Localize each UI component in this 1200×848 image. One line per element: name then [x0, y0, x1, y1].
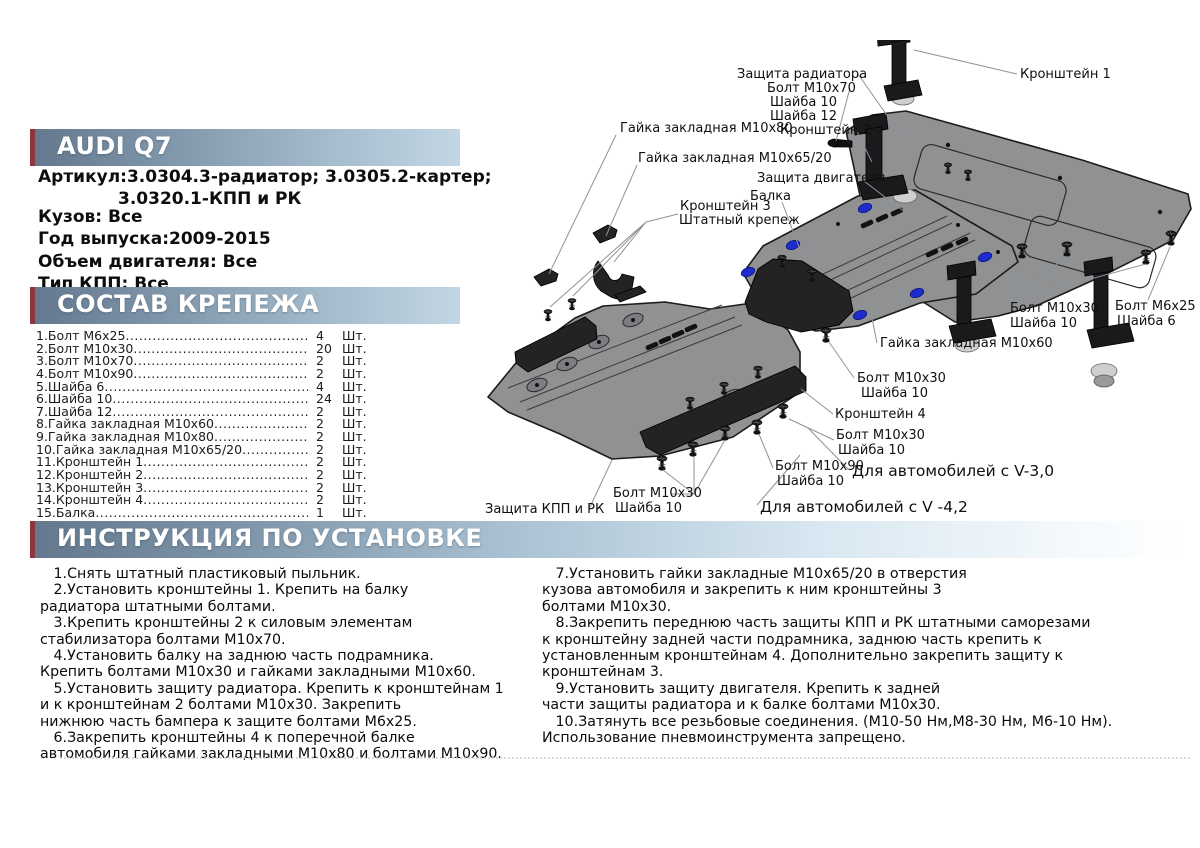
diagram-label: Гайка закладная М10х60	[880, 336, 1053, 351]
accent-stripe	[30, 287, 35, 324]
dot-leader: ........................................…	[95, 507, 308, 520]
diagram-label: Гайка закладная М10х80	[620, 121, 793, 136]
diagram-label: Шайба 10	[777, 474, 844, 489]
diagram-label: Защита радиатора	[737, 67, 867, 82]
instruction-step: 9.Установить защиту двигателя. Крепить к…	[542, 681, 1190, 714]
diagram-label: Кронштейн 1	[1020, 67, 1111, 82]
dot-leader: ........................................…	[143, 482, 308, 495]
gearbox-guard-plate	[488, 299, 806, 459]
part-qty: 2	[308, 444, 340, 457]
diagram-label: Шайба 10	[861, 386, 928, 401]
instructions-column-right: 7.Установить гайки закладные М10х65/20 в…	[542, 566, 1190, 746]
part-qty: 24	[308, 393, 340, 406]
instruction-step: 8.Закрепить переднюю часть защиты КПП и …	[542, 615, 1190, 681]
instruction-step: 2.Установить кронштейны 1. Крепить на ба…	[40, 582, 542, 615]
brand-header-bar: AUDI Q7	[30, 129, 460, 166]
parts-list: 1.Болт М6х25............................…	[36, 330, 372, 520]
diagram-label: Болт М10х90	[775, 459, 864, 474]
dot-leader: ........................................…	[143, 456, 308, 469]
diagram-label: Болт М6х25	[1115, 299, 1196, 314]
sliding-nut-m10x80	[534, 269, 558, 286]
diagram-label: Болт М10х30	[613, 486, 702, 501]
diagram-label: Болт М10х30	[857, 371, 946, 386]
instruction-step: 3.Крепить кронштейны 2 к силовым элемент…	[40, 615, 542, 648]
part-qty: 2	[308, 368, 340, 381]
instruction-step: 7.Установить гайки закладные М10х65/20 в…	[542, 566, 1190, 615]
diagram-label: Защита КПП и РК	[485, 502, 604, 517]
instruction-step: 1.Снять штатный пластиковый пыльник.	[40, 566, 542, 582]
diagram-label: Болт М10х70	[767, 81, 856, 96]
diagram-label: Шайба 6	[1117, 314, 1176, 329]
parts-title: СОСТАВ КРЕПЕЖА	[57, 290, 319, 318]
dot-leader: ........................................…	[214, 418, 308, 431]
part-qty: 2	[308, 469, 340, 482]
instruction-step: 5.Установить защиту радиатора. Крепить к…	[40, 681, 542, 730]
instruction-step: 10.Затянуть все резьбовые соединения. (М…	[542, 714, 1190, 747]
instructions-column-left: 1.Снять штатный пластиковый пыльник. 2.У…	[40, 566, 542, 763]
diagram-label: Гайка закладная М10х65/20	[638, 151, 832, 166]
part-qty: 2	[308, 456, 340, 469]
accent-stripe	[30, 129, 35, 166]
dot-leader: ........................................…	[133, 343, 308, 356]
dot-leader: ........................................…	[143, 494, 308, 507]
exploded-diagram: Защита радиатораБолт М10х70Шайба 10Шайба…	[455, 40, 1200, 540]
fold-line	[60, 757, 1190, 759]
part-qty: 2	[308, 418, 340, 431]
part-qty: 2	[308, 494, 340, 507]
spec-list: Кузов: ВсеГод выпуска:2009-2015Объем дви…	[38, 206, 271, 295]
dot-leader: ........................................…	[242, 444, 308, 457]
instructions-title: ИНСТРУКЦИЯ ПО УСТАНОВКЕ	[57, 524, 482, 552]
spec-line: Год выпуска:2009-2015	[38, 228, 271, 250]
part-name: 15.Балка	[36, 507, 95, 520]
diagram-label: Болт М10х30	[1010, 301, 1099, 316]
dot-leader: ........................................…	[133, 355, 308, 368]
diagram-label: Шайба 10	[1010, 316, 1077, 331]
brand-title: AUDI Q7	[57, 132, 172, 160]
part-qty: 2	[308, 355, 340, 368]
parts-row: 15.Балка................................…	[36, 507, 372, 520]
parts-header-bar: СОСТАВ КРЕПЕЖА	[30, 287, 460, 324]
diagram-label: Кронштейн 3	[680, 199, 771, 214]
instruction-sheet: AUDI Q7 Артикул:3.0304.3-радиатор; 3.030…	[0, 0, 1200, 848]
bracket-1	[877, 40, 922, 105]
diagram-label: Шайба 10	[770, 95, 837, 110]
dot-leader: ........................................…	[133, 368, 308, 381]
spec-line: Кузов: Все	[38, 206, 271, 228]
diagram-label: Болт М10х30	[836, 428, 925, 443]
dot-leader: ........................................…	[104, 381, 308, 394]
diagram-label: Штатный крепеж	[679, 213, 800, 228]
dot-leader: ........................................…	[125, 330, 308, 343]
instruction-step: 4.Установить балку на заднюю часть подра…	[40, 648, 542, 681]
diagram-label: Шайба 10	[615, 501, 682, 516]
dot-leader: ........................................…	[112, 393, 308, 406]
part-qty: 2	[308, 431, 340, 444]
part-qty: 2	[308, 406, 340, 419]
article-line1: Артикул:3.0304.3-радиатор; 3.0305.2-карт…	[38, 167, 492, 187]
part-unit: Шт.	[340, 507, 372, 520]
diagram-label: Кронштейн 4	[835, 407, 926, 422]
accent-stripe	[30, 521, 35, 558]
part-qty: 1	[308, 507, 340, 520]
diagram-label: Для автомобилей с V-3,0	[852, 462, 1054, 480]
part-qty: 20	[308, 343, 340, 356]
diagram-label: Для автомобилей с V -4,2	[760, 498, 968, 516]
dot-leader: ........................................…	[143, 469, 308, 482]
diagram-label: Шайба 10	[838, 443, 905, 458]
diagram-label: Защита двигателя	[757, 171, 885, 186]
diagram-label: Кронштейн 2	[780, 123, 871, 138]
part-qty: 2	[308, 482, 340, 495]
sliding-nut-m10x65	[593, 225, 617, 243]
spec-line: Объем двигателя: Все	[38, 251, 271, 273]
